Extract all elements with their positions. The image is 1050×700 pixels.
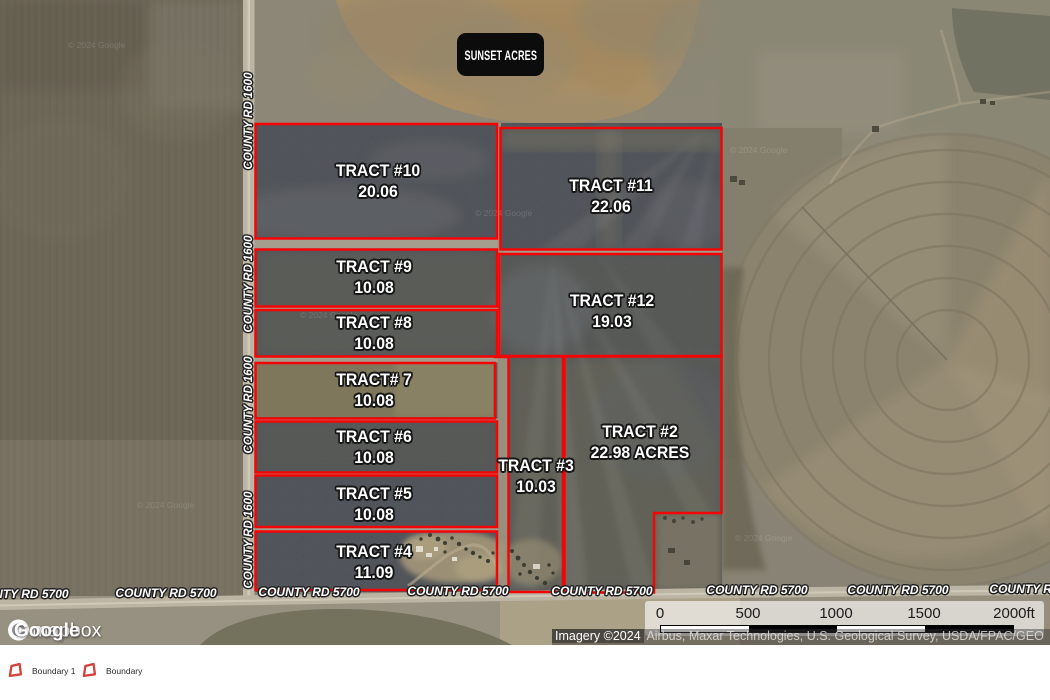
svg-text:Google: Google	[14, 621, 79, 642]
